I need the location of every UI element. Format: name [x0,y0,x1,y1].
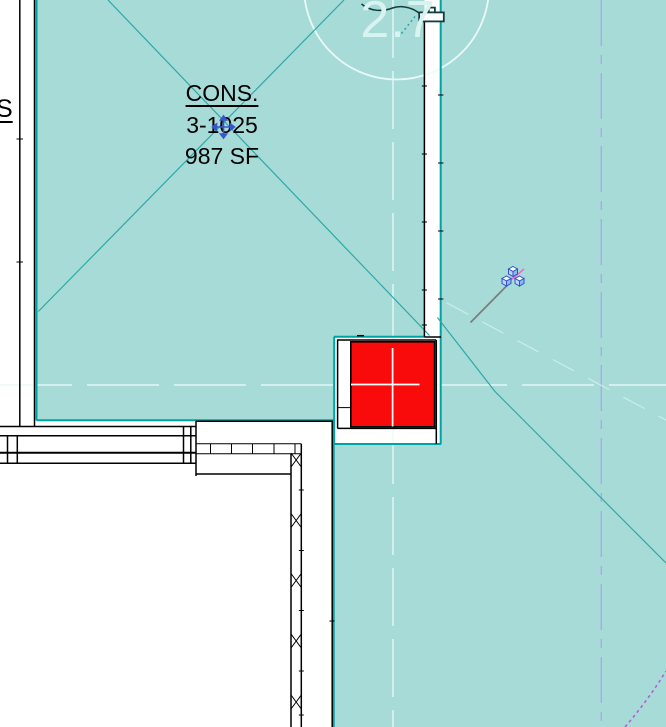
cursor-cubes-icon [502,267,524,287]
cursor-pole-line [471,284,509,323]
floor-plan-canvas[interactable]: 2.7 CONS. 3-1025 987 SF S [0,0,666,727]
room-move-cross-icon[interactable] [213,116,235,138]
component-placement-cursor [471,267,525,323]
icon-overlay [0,0,666,727]
